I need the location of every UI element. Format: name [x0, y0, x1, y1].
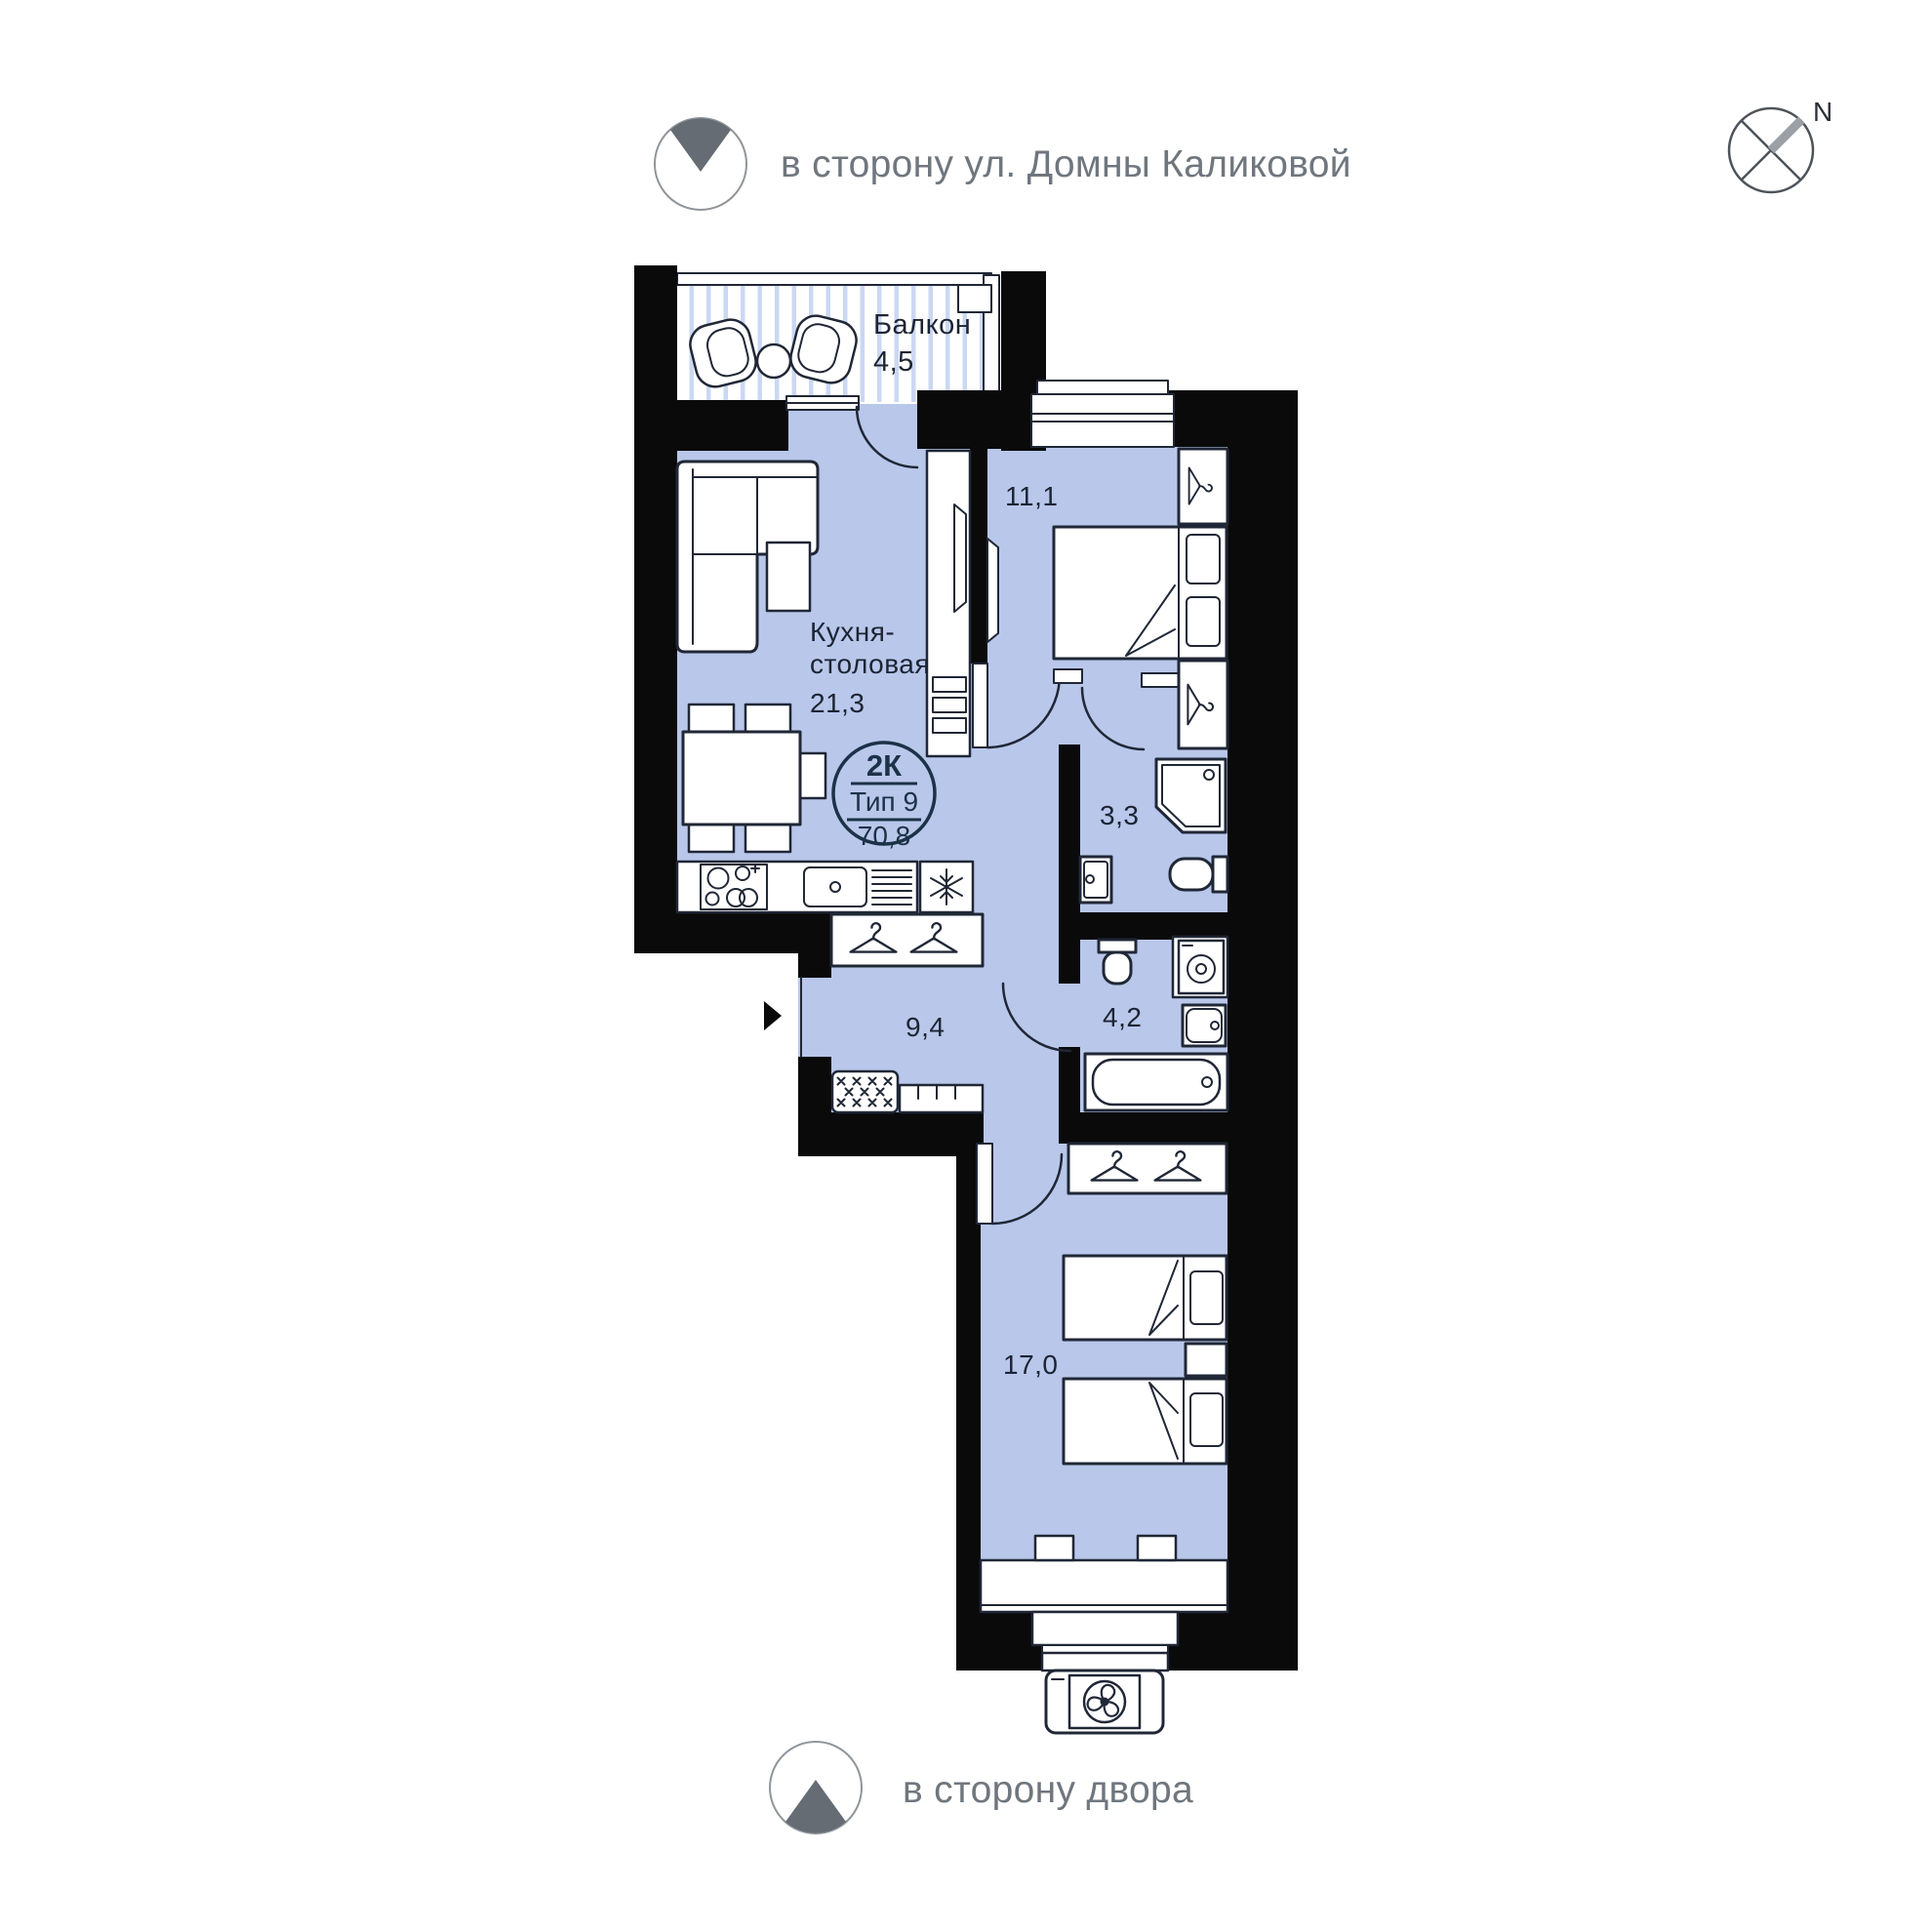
tv-icon [987, 539, 998, 642]
balcony-table-icon [757, 344, 790, 378]
toilet-tank [1213, 857, 1228, 892]
street-direction: в сторону ул. Домны Каликовой [655, 118, 1351, 210]
wall-stub [1054, 669, 1082, 683]
pillow-icon [1190, 1271, 1223, 1324]
toilet-tank [1099, 940, 1136, 952]
balcony-area: 4,5 [873, 346, 914, 378]
bedroom-2-door-gap [984, 1112, 1059, 1144]
kitchen-label-line1: Кухня- [810, 617, 895, 647]
bathroom-area: 4,2 [1103, 1002, 1142, 1032]
toilet-icon [1170, 859, 1213, 890]
entrance-gap-floor [798, 978, 831, 1057]
compass: N [1729, 97, 1832, 192]
nightstand-icon [1186, 1344, 1227, 1376]
chair-icon [798, 753, 825, 798]
entrance-arrow-icon [764, 1001, 782, 1030]
ventilation-unit [1046, 1670, 1163, 1733]
balcony-label: Балкон [873, 309, 971, 341]
bathtub-icon [1085, 1054, 1228, 1110]
badge-type: Тип 9 [850, 786, 918, 817]
sink-icon [804, 867, 866, 906]
chair-icon [745, 823, 790, 852]
compass-north-label: N [1813, 97, 1832, 127]
tv-icon [954, 504, 966, 612]
yard-direction: в сторону двора [770, 1742, 1193, 1833]
bedroom-1-window-sill [1037, 381, 1168, 394]
bedroom-1-door-leaf [973, 664, 987, 747]
floorplan-canvas: Балкон 4,5 [0, 0, 1932, 1932]
toilet-icon [1104, 952, 1131, 984]
bedroom-2-door-leaf [977, 1144, 992, 1224]
shelf-icon [933, 677, 966, 692]
wardrobe-icon [1179, 661, 1228, 748]
shelf-icon [933, 718, 966, 733]
coffee-table-icon [767, 543, 810, 611]
kitchen-area: 21,3 [810, 688, 865, 718]
balcony-rail-top [677, 273, 991, 285]
dining-table-icon [683, 732, 800, 825]
balcony: Балкон 4,5 [677, 273, 999, 402]
bedroom-1-area: 11,1 [1005, 481, 1058, 511]
shoe-bench-icon [900, 1085, 983, 1112]
shower-room-area: 3,3 [1100, 800, 1139, 830]
balcony-corner-box [958, 285, 991, 312]
bedroom-2-area: 17,0 [1003, 1349, 1059, 1380]
pillow-icon [1187, 535, 1220, 584]
washing-machine-icon [1179, 941, 1224, 993]
kitchen-label-line2: столовая [810, 649, 930, 679]
wardrobe-icon [1068, 1144, 1227, 1193]
radiator-icon [1035, 1536, 1073, 1560]
badge-rooms: 2К [866, 748, 902, 783]
window-bay-inner [1042, 1653, 1168, 1670]
wall-stub [1142, 673, 1181, 687]
hall-wardrobe [831, 914, 983, 966]
compass-north-ray [1771, 120, 1801, 150]
badge-area: 70,8 [858, 821, 911, 851]
street-direction-label: в сторону ул. Домны Каликовой [781, 143, 1351, 185]
yard-direction-label: в сторону двора [903, 1769, 1193, 1811]
chair-icon [689, 704, 734, 734]
pillow-icon [1187, 597, 1220, 646]
chair-icon [745, 704, 790, 734]
pillow-icon [1190, 1393, 1223, 1446]
bathroom-door-gap [1059, 984, 1080, 1047]
shelf-icon [933, 698, 966, 712]
hallway-area: 9,4 [906, 1012, 945, 1042]
radiator-icon [1138, 1536, 1176, 1560]
chair-icon [689, 823, 734, 852]
floorplan-page: Балкон 4,5 [0, 0, 1932, 1932]
window-bay-outer [1032, 1612, 1178, 1645]
